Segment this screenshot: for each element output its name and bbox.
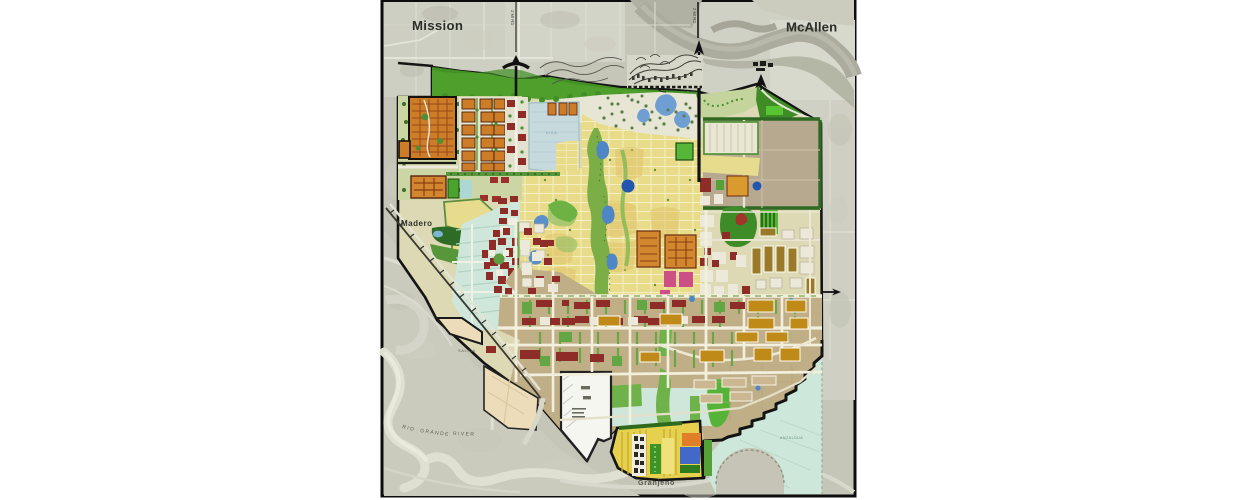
svg-text:McAllen: McAllen	[786, 20, 837, 35]
svg-text:ANZALDUA: ANZALDUA	[780, 436, 803, 440]
svg-text:Mission: Mission	[412, 18, 463, 33]
svg-text:Madero: Madero	[401, 219, 432, 228]
svg-text:2 MI RD: 2 MI RD	[510, 10, 515, 25]
svg-text:2 MI RD: 2 MI RD	[692, 8, 697, 23]
svg-text:Granjeno: Granjeno	[638, 480, 675, 487]
svg-text:KIKA: KIKA	[546, 131, 557, 135]
svg-text:RIVER: RIVER	[453, 431, 475, 438]
svg-text:SALIDA: SALIDA	[458, 348, 476, 353]
